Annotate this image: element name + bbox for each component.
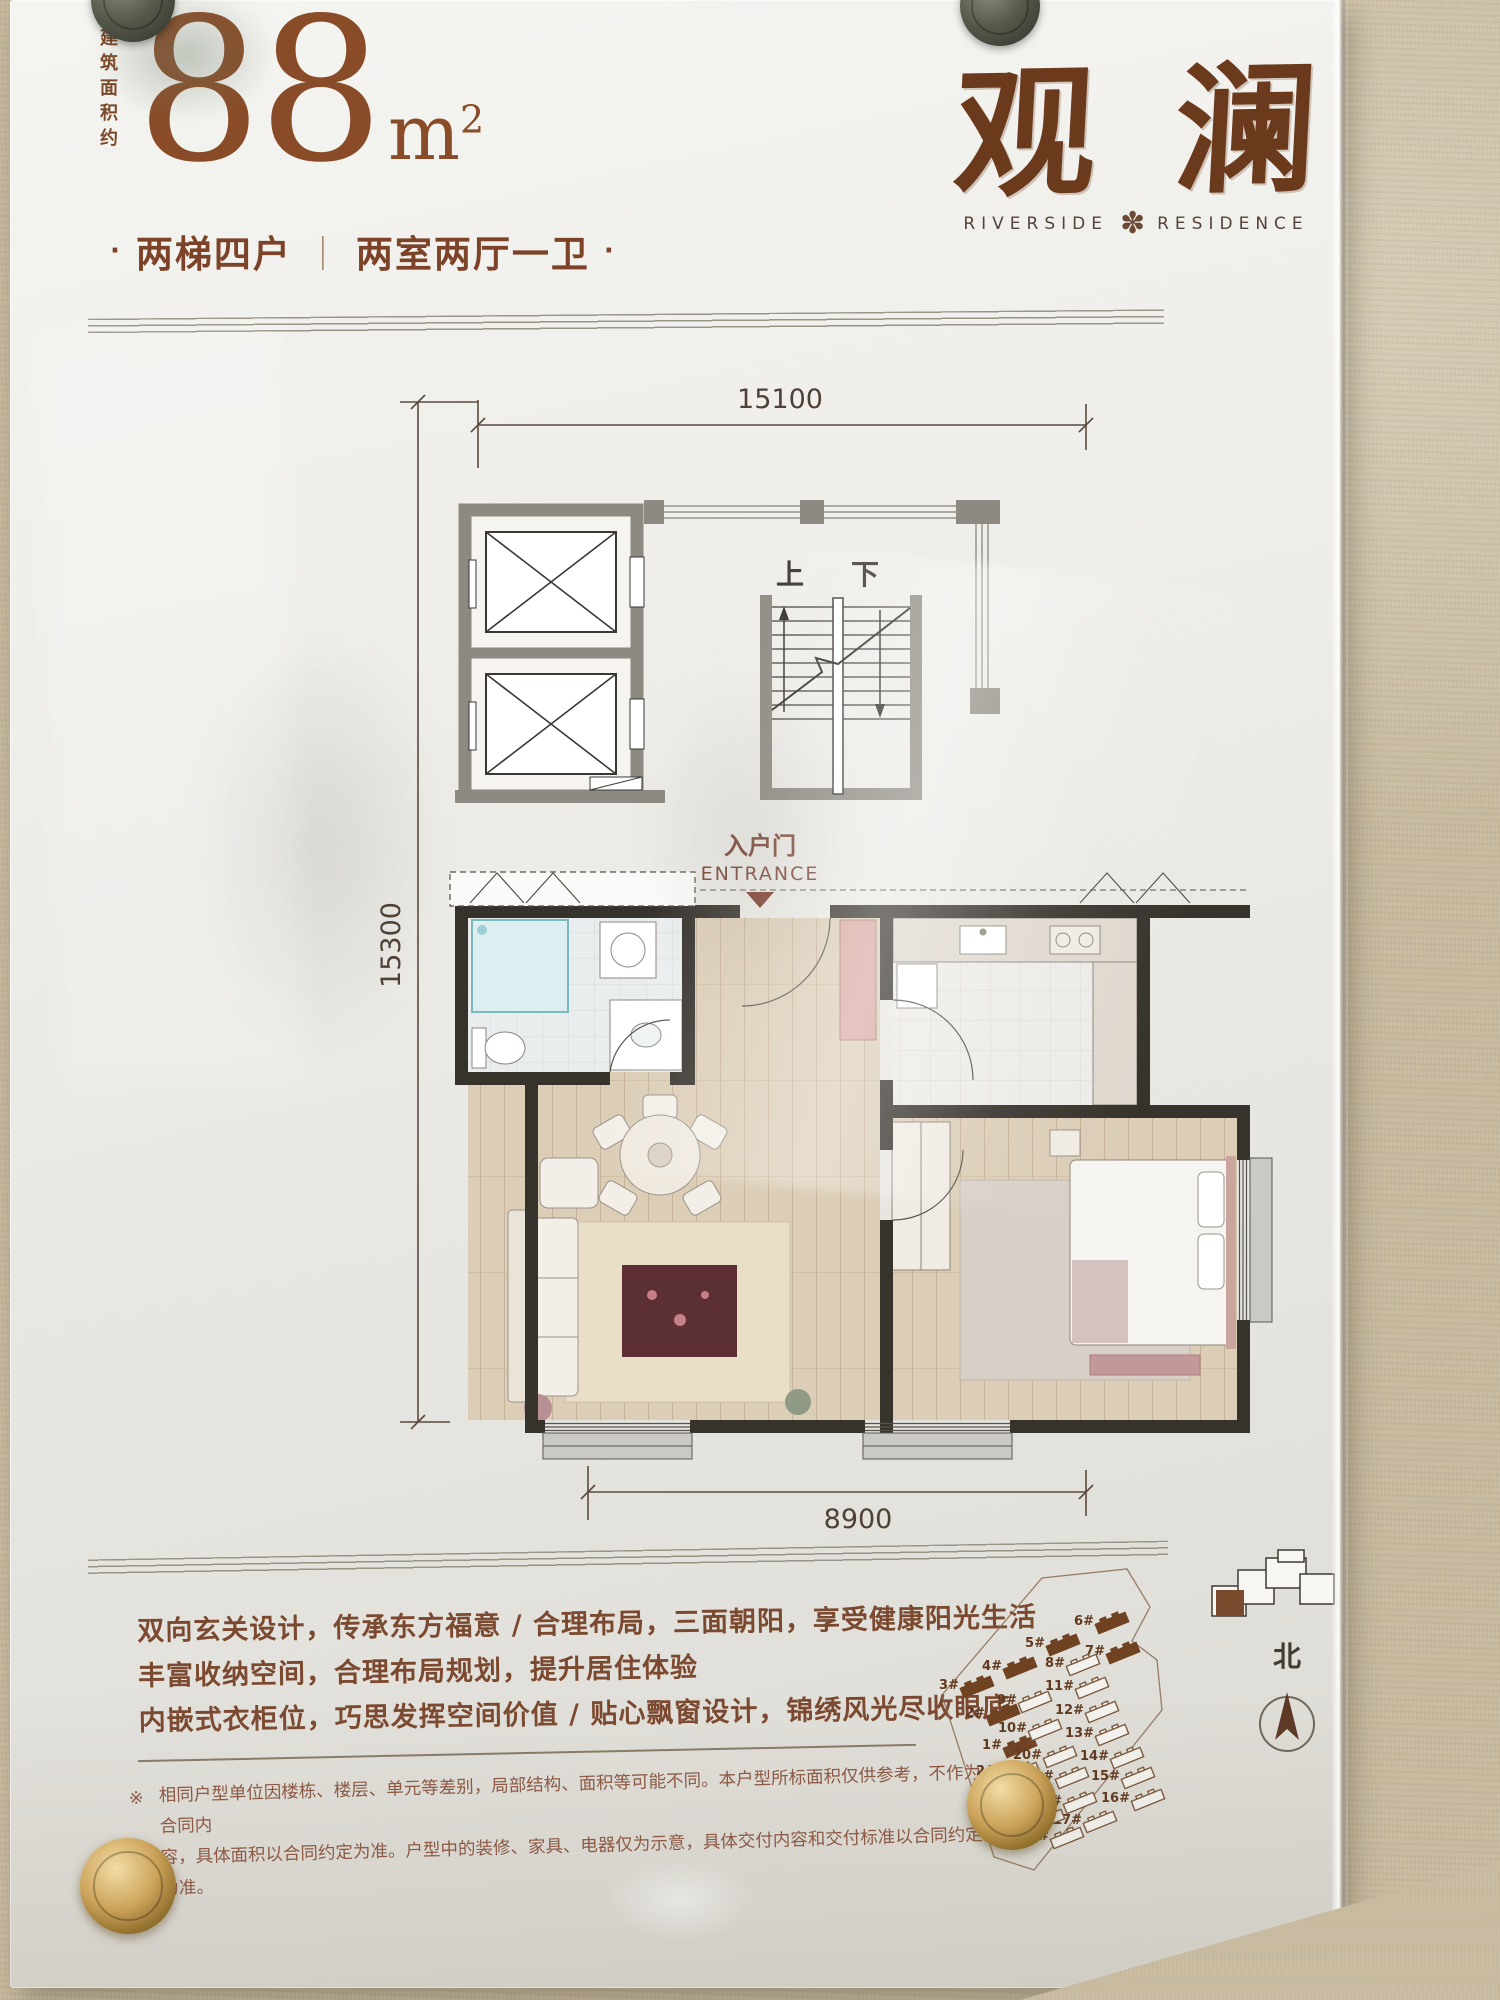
- bed-throw: [1072, 1260, 1128, 1343]
- site-plan-map: 1#2#3#4#5#6#7#8#9#10#11#12#13#14#15#16#1…: [922, 1545, 1172, 1885]
- siteplan-building: [1002, 1655, 1037, 1679]
- subtitle-bullet-right: ·: [604, 236, 616, 266]
- siteplan-building: [1130, 1787, 1165, 1811]
- siteplan-building: [1049, 1825, 1084, 1849]
- siteplan-building: [1105, 1640, 1140, 1664]
- subtitle-elevator-ratio: 两梯四户: [136, 224, 292, 278]
- siteplan-building-label: 11#: [1045, 1679, 1074, 1694]
- siteplan-building-label: 1#: [982, 1738, 1002, 1753]
- selling-points: 双向玄关设计，传承东方福意 / 合理布局，三面朝阳，享受健康阳光生活 丰富收纳空…: [137, 1595, 1039, 1744]
- dim-left-value: 15300: [376, 902, 407, 988]
- tagline-riverside: RIVERSIDE: [963, 214, 1108, 234]
- unit-key-plan: [1208, 1548, 1348, 1643]
- siteplan-building: [1074, 1675, 1109, 1699]
- brand-tagline: RIVERSIDE ✽ RESIDENCE: [950, 206, 1322, 241]
- area-prefix-vertical-label: 建筑面积约: [94, 28, 120, 198]
- area-number: 88: [136, 0, 380, 208]
- floorplan-poster-panel: 建筑面积约 88 m2 · 两梯四户 ｜ 两室两厅一卫 · 观 澜 RIVERS…: [10, 0, 1340, 1988]
- siteplan-building-label: 4#: [982, 1659, 1002, 1674]
- siteplan-building-label: 15#: [1091, 1769, 1120, 1784]
- area-value: 88 m2: [136, 0, 484, 208]
- flower-medallion-icon: ✽: [1120, 206, 1145, 241]
- plant: [785, 1389, 811, 1415]
- dimension-top: 15100: [471, 384, 1093, 468]
- siteplan-building: [1094, 1610, 1129, 1634]
- entrance-en-label: ENTRANCE: [701, 863, 820, 885]
- window-reflection: [37, 326, 303, 1094]
- stair-up-label: 上: [776, 558, 804, 591]
- standoff-bolt-bottom-right: [967, 1760, 1057, 1850]
- logo-char-2: 澜: [1170, 13, 1323, 221]
- north-compass: 北: [1232, 1636, 1342, 1771]
- logo-char-1: 观: [949, 17, 1102, 225]
- washing-machine: [600, 922, 656, 978]
- subtitle-divider: ｜: [306, 227, 342, 276]
- bed-bench: [1090, 1355, 1200, 1375]
- acrylic-panel-edge: [1332, 0, 1348, 2000]
- siteplan-building-label: 8#: [1045, 1656, 1065, 1671]
- photo-of-floorplan-poster: { "colors": { "brand_brown": "#6b3a1d", …: [0, 0, 1500, 2000]
- siteplan-building: [1054, 1765, 1089, 1789]
- dimension-bottom: 8900: [581, 1466, 1093, 1535]
- siteplan-building: [1042, 1744, 1077, 1768]
- siteplan-building: [1082, 1809, 1117, 1833]
- entrance-label: 入户门 ENTRANCE: [701, 832, 820, 908]
- highlighted-unit: [1216, 1590, 1244, 1616]
- wall-background: [1348, 0, 1500, 2000]
- toilet: [485, 1032, 525, 1064]
- stairwell: 上 下: [760, 558, 922, 800]
- layout-subtitle: · 两梯四户 ｜ 两室两厅一卫 ·: [110, 224, 616, 278]
- stair-handrail: [833, 598, 843, 794]
- ac-platform: [450, 872, 1250, 906]
- fridge: [897, 964, 937, 1008]
- siteplan-building: [1062, 1790, 1097, 1814]
- siteplan-building: [1045, 1632, 1080, 1656]
- shower-area: [472, 920, 568, 1012]
- siteplan-building-label: 5#: [1025, 1636, 1045, 1651]
- nightstand: [1050, 1130, 1080, 1156]
- dim-bottom-value: 8900: [824, 1504, 893, 1535]
- siteplan-building-label: 9#: [997, 1693, 1017, 1708]
- siteplan-building: [959, 1674, 994, 1698]
- siteplan-building-label: 13#: [1065, 1726, 1094, 1741]
- standoff-bolt-bottom-left: [80, 1838, 176, 1934]
- siteplan-building-label: 6#: [1074, 1614, 1094, 1629]
- siteplan-building-label: 10#: [998, 1721, 1027, 1736]
- siteplan-building-label: 2#: [965, 1706, 985, 1721]
- area-unit: m2: [388, 88, 484, 177]
- siteplan-building: [1109, 1745, 1144, 1769]
- disclaimer-text: ※ 相同户型单位因楼栋、楼层、单元等差别，局部结构、面积等可能不同。本户型所标面…: [128, 1758, 991, 1906]
- siteplan-building-label: 14#: [1080, 1749, 1109, 1764]
- siteplan-building: [1065, 1652, 1100, 1676]
- entrance-arrow-icon: [746, 892, 774, 908]
- siteplan-building: [1094, 1722, 1129, 1746]
- accent-carpet: [622, 1265, 737, 1357]
- siteplan-building: [1084, 1699, 1119, 1723]
- apartment-floorplan-drawing: 上 下 入户门 ENTRANCE 15100 15300: [360, 360, 1280, 1545]
- siteplan-building: [1120, 1765, 1155, 1789]
- pillow: [1198, 1234, 1224, 1289]
- stair-down-label: 下: [851, 558, 879, 591]
- entrance-cn-label: 入户门: [724, 832, 796, 860]
- tagline-residence: RESIDENCE: [1157, 214, 1309, 234]
- subtitle-bullet-left: ·: [110, 236, 122, 266]
- siteplan-building-label: 12#: [1055, 1703, 1084, 1718]
- entry-cabinet: [840, 920, 876, 1040]
- siteplan-building-label: 3#: [939, 1678, 959, 1693]
- siteplan-building-label: 16#: [1101, 1791, 1130, 1806]
- elevator-core: [455, 510, 665, 803]
- subtitle-room-count: 两室两厅一卫: [356, 224, 590, 278]
- disclaimer-marker: ※: [128, 1784, 144, 1815]
- armchair: [540, 1158, 598, 1208]
- siteplan-building: [1027, 1717, 1062, 1741]
- north-label: 北: [1273, 1640, 1301, 1673]
- header-divider-rule: [88, 309, 1164, 333]
- pillow: [1198, 1172, 1224, 1227]
- disclaimer-rule: [138, 1744, 916, 1762]
- dim-top-value: 15100: [737, 384, 823, 415]
